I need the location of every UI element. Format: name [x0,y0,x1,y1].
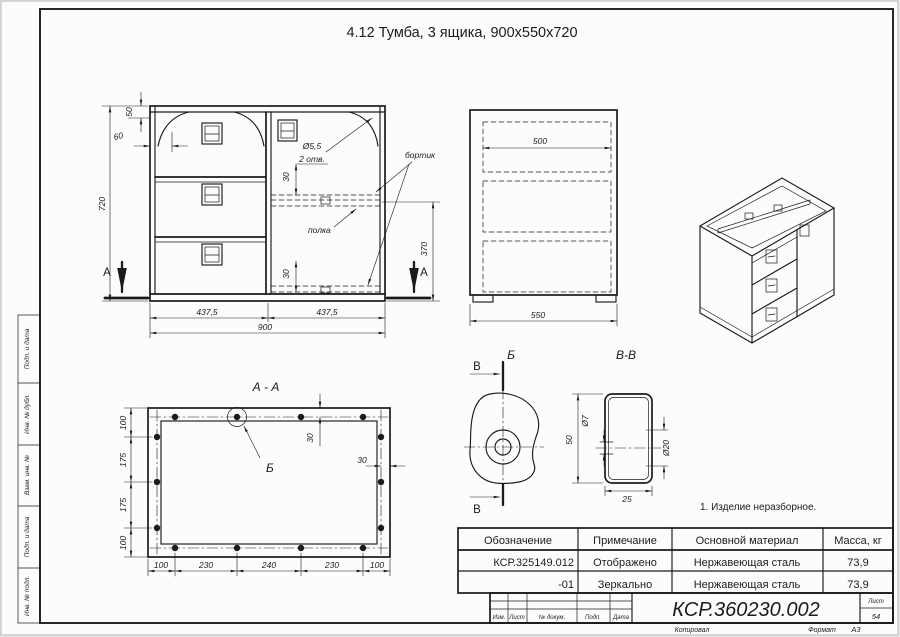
dim-aa-v-175a: 175 [118,453,128,467]
dim-900: 900 [258,322,272,332]
dim-vv-50: 50 [564,435,574,445]
detail-b-callout-letter: Б [266,461,274,475]
label-bortik: бортик [405,150,436,160]
spec-cell-remark-1: Отображено [593,557,657,569]
dim-aa-v-100b: 100 [118,536,128,550]
spec-cell-mass-1: 73,9 [847,557,868,569]
dim-437-right: 437,5 [316,307,338,317]
dim-vv-25: 25 [621,494,632,504]
dim-vv-d7: Ø7 [580,415,590,428]
tb-col-dokum: № докум. [539,614,565,621]
dim-aa-v-100a: 100 [118,416,128,430]
dim-550: 550 [531,310,545,320]
margin-label-podp-data-2: Подп. и дата [23,516,31,557]
tb-col-podp: Подп. [585,615,601,621]
spec-header-material: Основной материал [696,535,799,547]
section-aa-title: А - А [252,380,280,394]
dim-500: 500 [533,136,547,146]
hole-quantity-label: 2 отв. [298,154,325,164]
dim-aa-v-175b: 175 [118,498,128,512]
tb-col-data: Дата [612,615,629,621]
dim-aa-h-230a: 230 [198,560,213,570]
sheet-label: Лист [867,599,883,605]
dim-30-upper: 30 [281,172,291,182]
section-v-letter-bottom: В [473,504,481,516]
dim-50: 50 [124,107,134,117]
dim-370: 370 [419,242,429,256]
dim-aa-h-100b: 100 [370,560,384,570]
spec-cell-material-1: Нержавеющая сталь [694,557,801,569]
spec-cell-remark-2: Зеркально [598,579,652,591]
section-a-letter-right: А [420,267,428,279]
spec-header-designation: Обозначение [484,535,552,547]
sheet-number: 54 [872,612,880,621]
spec-cell-designation-2: -01 [558,579,574,591]
page-title: 4.12 Тумба, 3 ящика, 900х550х720 [346,25,577,41]
dim-vv-d20: Ø20 [661,440,671,457]
tb-col-list: Лист [508,615,524,621]
copied-label: Копировал [675,627,710,634]
detail-b-title: Б [507,348,515,362]
section-vv-title: В-В [616,348,636,362]
label-polka: полка [308,225,331,235]
spec-cell-designation-1: КСР.325149.012 [493,557,574,569]
drawing-note: 1. Изделие неразборное. [700,501,816,513]
dim-720: 720 [97,197,107,211]
margin-label-inv-podl: Инв. № подл. [23,576,31,617]
dim-437-left: 437,5 [196,307,218,317]
margin-label-vzam-inv: Взам. инв. № [24,455,31,495]
spec-cell-mass-2: 73,9 [847,579,868,591]
dim-aa-h-230b: 230 [324,560,339,570]
hole-diameter-label: Ø5,5 [302,141,322,151]
tb-col-izm: Изм. [493,615,506,621]
document-number: КСР.360230.002 [672,599,819,621]
spec-header-remark: Примечание [593,535,657,547]
drawing-sheet: Подп. и дата Инв. № дубл. Взам. инв. № П… [0,0,900,637]
format-value: А3 [850,625,861,634]
dim-aa-30-right: 30 [357,455,367,465]
drawing-page: Подп. и дата Инв. № дубл. Взам. инв. № П… [0,0,900,637]
dim-aa-h-240: 240 [261,560,276,570]
spec-header-mass: Масса, кг [834,535,881,547]
dim-aa-30-top: 30 [305,433,315,443]
spec-cell-material-2: Нержавеющая сталь [694,579,801,591]
format-label: Формат [808,627,836,634]
dim-aa-h-100a: 100 [154,560,168,570]
margin-label-inv-dubl: Инв. № дубл. [23,394,31,434]
dim-30-lower: 30 [281,269,291,279]
margin-label-podp-data-1: Подп. и дата [23,328,31,369]
section-v-letter-top: В [473,361,481,373]
